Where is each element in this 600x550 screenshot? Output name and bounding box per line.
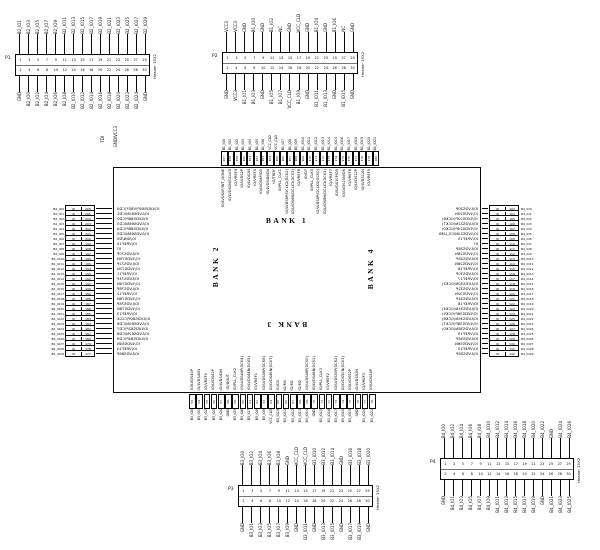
pin-number: 6 xyxy=(241,66,250,70)
net-label: B2_IO21 xyxy=(108,17,112,34)
wire xyxy=(73,76,74,92)
net-label: B2_IO16 xyxy=(50,287,64,291)
net-label: B4_IO0 xyxy=(520,207,546,211)
pin-number-box: 172 xyxy=(320,151,327,166)
pin-number: 7 xyxy=(43,58,52,62)
pin-number: 180 xyxy=(375,156,378,161)
pin-number: 15 xyxy=(503,462,512,466)
wire xyxy=(444,480,445,496)
pin-number-row: 1357911131517192123252729 xyxy=(16,55,149,66)
wire xyxy=(82,76,83,92)
wire xyxy=(251,465,252,485)
header-pin-labels: GNDB2_IO0B2_IO2B2_IO4B2_IO6B2_IO8B2_IO10… xyxy=(15,92,150,116)
wire xyxy=(96,353,112,354)
pin-number-row: 1357911131517192123252729 xyxy=(441,459,573,470)
pin-number-box: 170 xyxy=(307,151,314,166)
pin-label-cell: B4_IO14 xyxy=(503,414,512,438)
pin-number: 14 xyxy=(69,68,78,72)
pin-function-label: IO/LVDS48P(GCK0) xyxy=(306,356,310,390)
pin-label-cell: GND xyxy=(440,496,449,520)
pin-function: IO/PLL_CLK3 xyxy=(318,338,325,390)
net-label: GND xyxy=(261,90,265,99)
wire xyxy=(323,507,324,523)
pin-number: 1 xyxy=(16,58,25,62)
pin-number: 12 xyxy=(485,472,494,476)
pin-function-label: IO/LVDS44P(GCK4) xyxy=(241,356,245,390)
net-label: NC xyxy=(279,26,283,32)
pin-top: B1_IO8167 xyxy=(287,116,294,166)
net-label: B1_IO16 xyxy=(341,137,344,150)
header-pin-labels: VCC3VCC3GNDB1_IO0GNDB1_IO2NCGNDVCC_CLDGN… xyxy=(222,8,358,32)
pin-number: 21 xyxy=(529,462,538,466)
net-label: B2_IO27 xyxy=(50,342,64,346)
pin-top: B1_IO14173 xyxy=(327,116,334,166)
net-label: B4_IO24 xyxy=(520,327,546,331)
pin-number: 29 xyxy=(348,56,357,60)
pin-top: B1_IO10169 xyxy=(300,116,307,166)
pin-function-label: IO/PLL_CLK1 xyxy=(279,169,283,191)
pin-label-cell: B4_IO23 xyxy=(556,496,565,520)
wire xyxy=(482,313,488,314)
bank3-pin-functions: IO/LVDS40PIO/LVDS40NIO/VREF0IO/LVDS42PIO… xyxy=(189,338,376,390)
wire xyxy=(482,268,488,269)
pin-function-label: IO/LVDS12P xyxy=(355,169,359,190)
wire xyxy=(127,76,128,92)
pin-function-label: IO/VREF7 xyxy=(330,169,334,186)
pin-number: 68 xyxy=(299,400,302,404)
pin-number: 157 xyxy=(223,156,226,161)
wire xyxy=(482,278,488,279)
pin-bottom: 68B3_IO13 xyxy=(297,394,304,438)
net-label: B3_IO11 xyxy=(304,523,308,540)
wire xyxy=(82,34,83,54)
pin-number: 72 xyxy=(328,400,331,404)
wire xyxy=(96,248,112,249)
net-label: B1_IO12 xyxy=(315,137,318,150)
wire xyxy=(299,74,300,90)
pin-label-cell: GND xyxy=(538,496,547,520)
wire xyxy=(542,438,543,458)
pin-number: 30 xyxy=(140,68,149,72)
pin-label-cell: B1_IO5 xyxy=(267,90,276,114)
pin-wires xyxy=(15,76,150,92)
wire xyxy=(482,228,488,229)
wire xyxy=(482,353,488,354)
net-label: B2_IO14 xyxy=(90,92,94,109)
wire xyxy=(226,32,227,52)
wire xyxy=(64,34,65,54)
header-body: 1357911131517192123252729246810121416182… xyxy=(440,458,574,480)
pin-number: 21 xyxy=(328,489,337,493)
net-label: B4_IO3 xyxy=(520,222,546,226)
pin-number: 62 xyxy=(256,400,259,404)
pin-number: 3 xyxy=(450,462,459,466)
bank1-pin-functions: IO/LVDS0P/INT_DONEIO/LVDS0N/GCLK5IO/VREF… xyxy=(221,169,373,237)
wire xyxy=(96,273,112,274)
pin-number: 23 xyxy=(321,56,330,60)
pin-number-box: 175 xyxy=(340,151,347,166)
pin-number: 60 xyxy=(242,400,245,404)
pin-number-box: 166 xyxy=(280,151,287,166)
pin-label-cell: GND xyxy=(258,90,267,114)
pin-bottom: 72B3_IO16 xyxy=(326,394,333,438)
pin-label-cell: B2_IO29 xyxy=(141,10,150,34)
net-label: B3_IO14 xyxy=(306,409,309,422)
wire xyxy=(482,338,488,339)
pin-label-cell: GND xyxy=(283,441,292,465)
net-label: B4_IO22 xyxy=(541,421,545,438)
pin-number: 173 xyxy=(328,156,331,161)
bank4-pin-functions: IO/LVDS20PIO/LVDS20NIO/LVDS22P(GCK6)IO/L… xyxy=(382,206,478,356)
pin-number: 168 xyxy=(295,156,298,161)
pin-number-box: 70 xyxy=(311,394,318,409)
pin-top: B1_IO16175 xyxy=(340,116,347,166)
net-label: B4_IO0 xyxy=(442,424,446,438)
pin-number: 29 xyxy=(363,489,372,493)
pin-label-cell: B2_IO18 xyxy=(105,92,114,116)
pin-function-label: IO/VREF5 xyxy=(254,169,258,186)
net-label: B1_IO19 xyxy=(361,137,364,150)
net-label: GND xyxy=(340,523,344,532)
wire xyxy=(136,34,137,54)
net-label: B4_IO8 xyxy=(520,247,546,251)
net-label: B3_IO0 xyxy=(191,409,194,420)
pin-top: B1_IO13172 xyxy=(320,116,327,166)
pin-number-cell: 132 xyxy=(506,352,518,356)
pin-number: 75 xyxy=(349,400,352,404)
pin-number: 15 xyxy=(78,58,87,62)
wire xyxy=(482,303,488,304)
wire xyxy=(96,253,112,254)
pin-number-box: 179 xyxy=(366,151,373,166)
schematic-page: P1 Header 15X2 B2_IO1B2_IO3B2_IO5B2_IO7B… xyxy=(0,0,600,550)
wire xyxy=(482,333,488,334)
pin-function-label: IO/LVDS42P xyxy=(212,369,216,390)
pin-number: 9 xyxy=(274,489,283,493)
pin-function-label: IO/LVDS10N/D6 xyxy=(343,169,347,197)
pin-number: 4 xyxy=(248,499,257,503)
pin-label-cell: B1_IO11 xyxy=(313,90,322,114)
net-label: B2_IO23 xyxy=(117,17,121,34)
pin-number: 12 xyxy=(60,68,69,72)
net-label: B4_IO22 xyxy=(520,317,546,321)
pin-number-box: 169 xyxy=(300,151,307,166)
pin-number: 59 xyxy=(234,400,237,404)
pin-label-cell: GND xyxy=(222,90,231,114)
wire xyxy=(145,76,146,92)
pin-number: 21 xyxy=(312,56,321,60)
pin-bottom: 71B3_IO15 xyxy=(318,394,325,438)
wire xyxy=(96,328,112,329)
pin-number-cell: 177 xyxy=(82,352,94,356)
connector-p4: P4 Header 15X2 B4_IO0B4_IO2B4_IO4B4_IO6B… xyxy=(440,414,574,520)
pin-function: IO/VREF1 xyxy=(254,338,261,390)
net-label: B3_IO10 xyxy=(313,448,317,465)
pin-number: 20 xyxy=(520,472,529,476)
wire xyxy=(462,438,463,458)
net-label: B3_IO8 xyxy=(277,451,281,465)
net-label: B3_IO5 xyxy=(268,523,272,537)
net-label: B2_IO0 xyxy=(27,92,31,106)
pin-bottom: 63B3_IO9 xyxy=(261,394,268,438)
pin-number: 19 xyxy=(303,56,312,60)
pin-number-box: 178 xyxy=(359,151,366,166)
net-label: B4_IO17 xyxy=(523,496,527,513)
pin-number: 16 xyxy=(301,499,310,503)
net-label: VCC_CLD xyxy=(288,90,292,108)
wire xyxy=(287,507,288,523)
pin-number: 3 xyxy=(248,489,257,493)
wire xyxy=(296,465,297,485)
pin-function-label: IO/VREF1 xyxy=(255,373,259,390)
pin-number-box: 176 xyxy=(346,151,353,166)
pin-label-cell: B4_IO19 xyxy=(529,496,538,520)
net-label: B1_IO11 xyxy=(308,137,311,150)
pin-label-cell: B3_IO0 xyxy=(238,441,247,465)
pin-label-cell: B2_IO6 xyxy=(51,92,60,116)
wire xyxy=(96,208,112,209)
net-label: B4_IO12 xyxy=(496,421,500,438)
net-label: B4_IO26 xyxy=(520,337,546,341)
net-label: B2_IO27 xyxy=(135,17,139,34)
pin-function-label: IO/LVDS42N xyxy=(220,369,224,390)
net-label: B2_IO5 xyxy=(36,20,40,34)
wire xyxy=(506,438,507,458)
net-label: B2_IO14 xyxy=(50,277,64,281)
pin-function: IO/D0 xyxy=(275,338,282,390)
wire xyxy=(368,507,369,523)
pin-bottom: 59B3_IO5 xyxy=(232,394,239,438)
pin-bottom: 56B3_IO3 xyxy=(211,394,218,438)
net-label: B2_IO7 xyxy=(45,20,49,34)
pin-function-label: IO/VREF0 xyxy=(205,373,209,390)
pin-number-box: 54 xyxy=(196,394,203,409)
pin-number: 25 xyxy=(547,462,556,466)
pin-label-cell: B4_IO7 xyxy=(476,496,485,520)
pin-label-cell: B2_IO0 xyxy=(24,92,33,116)
pin-number: 10 xyxy=(51,68,60,72)
pin-bottom: 57B3_IO4 xyxy=(218,394,225,438)
net-label: B2_IO22 xyxy=(50,317,64,321)
pin-label-cell: B4_IO15 xyxy=(512,496,521,520)
net-label: B1_IO0 xyxy=(252,18,256,32)
net-label: GND xyxy=(550,429,554,438)
refdes-label: P1 xyxy=(5,56,11,61)
net-label: B3_IO8 xyxy=(256,409,259,420)
wire xyxy=(96,258,112,259)
net-label: B2_IO1 xyxy=(50,212,64,216)
pin-label-cell: GND xyxy=(547,414,556,438)
net-label: B1_IO13 xyxy=(322,137,325,150)
net-label: B2_IO25 xyxy=(50,332,64,336)
pin-function: IO/VREF3 xyxy=(362,338,369,390)
pin-wires xyxy=(222,32,358,52)
net-label: B1_IO0 xyxy=(223,139,226,150)
pin-function: IO/LVDS42N xyxy=(218,338,225,390)
pin-bottom: 77B3_IO20 xyxy=(362,394,369,438)
pin-function-label: IO/TRDY xyxy=(273,169,277,184)
pin-label-cell: B3_IO3 xyxy=(256,523,265,547)
pin-function-label: IO/PLL_CLK2 xyxy=(234,368,238,390)
net-label: B3_IO18 xyxy=(342,409,345,422)
pin-number: 165 xyxy=(276,156,279,161)
net-label: B4_IO9 xyxy=(520,252,546,256)
pin-label-cell: B1_IO13 xyxy=(322,90,331,114)
pin-top: B1_IO18177 xyxy=(353,116,360,166)
net-label: B3_IO16 xyxy=(328,409,331,422)
wire xyxy=(96,243,112,244)
wire xyxy=(280,74,281,90)
pin-function-label: IO/PLL_CLK0 xyxy=(311,169,315,191)
net-label: B4_IO19 xyxy=(520,302,546,306)
pin-number-row: 24681012141618202224262830 xyxy=(223,64,357,74)
pin-number: 162 xyxy=(256,156,259,161)
pin-label-cell: B2_IO23 xyxy=(114,10,123,34)
pin-top: B1_IO20179 xyxy=(366,116,373,166)
net-label: B1_IO6 xyxy=(333,18,337,32)
pin-label-cell: B2_IO3 xyxy=(24,10,33,34)
bank2-pin-functions: IO/LVDS64P/VREF/CD0IO/LVDS64N/CD1IO/LVDS… xyxy=(117,206,213,356)
pin-left: B2_IO29IO177 xyxy=(50,351,112,356)
net-label: B2_IO4 xyxy=(50,227,64,231)
pin-label-cell: B4_IO16 xyxy=(512,414,521,438)
pin-function-label: IO/LVDS40P xyxy=(191,369,195,390)
pin-number: 28 xyxy=(339,66,348,70)
pin-number: 73 xyxy=(335,400,338,404)
pin-number: 14 xyxy=(292,499,301,503)
pin-number: 17 xyxy=(310,489,319,493)
pin-function: IO/LVDS46P(GCK6) xyxy=(261,338,268,390)
wire xyxy=(353,32,354,52)
pin-number: 30 xyxy=(363,499,372,503)
wire xyxy=(96,343,112,344)
pin-top: B1_IO9168 xyxy=(294,116,301,166)
net-label: B1_IO8 xyxy=(289,139,292,150)
net-label: B4_IO16 xyxy=(520,287,546,291)
pin-label-cell: VCC_CLD xyxy=(285,90,294,114)
pin-function: IO/VREF0 xyxy=(203,338,210,390)
pin-label-cell: B4_IO8 xyxy=(476,414,485,438)
pin-label-cell: GND xyxy=(322,8,331,32)
wire xyxy=(515,480,516,496)
net-label: B2_IO19 xyxy=(50,302,64,306)
wire xyxy=(100,76,101,92)
pin-number: 29 xyxy=(140,58,149,62)
pin-function: IO/LVDS40P xyxy=(189,338,196,390)
wire xyxy=(235,32,236,52)
pin-function-label: IO/VREF6 xyxy=(298,169,302,186)
net-label: B3_IO6 xyxy=(241,409,244,420)
net-label: B2_IO1 xyxy=(18,20,22,34)
pin-number: 22 xyxy=(105,68,114,72)
net-label: B4_IO4 xyxy=(520,227,546,231)
part-label: Header 15X2 xyxy=(361,52,365,77)
wire xyxy=(482,283,488,284)
net-label: VCC_CLD xyxy=(269,135,272,150)
wire xyxy=(482,298,488,299)
net-label: B2_IO15 xyxy=(81,17,85,34)
pin-function-label: IO/LVDS0N/GCLK5 xyxy=(229,169,233,201)
pin-function: IO/LVDS40N xyxy=(196,338,203,390)
pin-label-cell: GND xyxy=(331,90,340,114)
pin-number: 19 xyxy=(96,58,105,62)
net-label: B1_IO5 xyxy=(270,90,274,104)
wire xyxy=(96,348,112,349)
net-label: GND xyxy=(313,523,317,532)
bank4-external-pins: IO103B4_IO0IO104B4_IO1IO105B4_IO2IO106B4… xyxy=(482,206,546,356)
pin-label-cell: GND xyxy=(337,441,346,465)
pin-number-box: 53 xyxy=(189,394,196,409)
pin-function-label: IO/LVDS52N xyxy=(356,369,360,390)
pin-bottom: 66B3_IO11 xyxy=(282,394,289,438)
wire xyxy=(305,465,306,485)
pin-number: 13 xyxy=(69,58,78,62)
pin-label-cell: B1_IO6 xyxy=(331,8,340,32)
wire xyxy=(305,507,306,523)
pin-number: 174 xyxy=(335,156,338,161)
net-label: B4_IO15 xyxy=(520,282,546,286)
wire xyxy=(353,74,354,90)
pin-number-box: 158 xyxy=(228,151,235,166)
net-label: VCC_CLD xyxy=(270,409,273,424)
pin-function-label: IO/LVDS2N xyxy=(248,169,252,188)
wire xyxy=(242,507,243,523)
header-pin-labels: B4_IO0B4_IO2B4_IO4B4_IO6B4_IO8B4_IO10B4_… xyxy=(440,414,574,438)
pin-number: 23 xyxy=(538,462,547,466)
wire xyxy=(335,32,336,52)
net-label: VCC3 xyxy=(234,90,238,101)
wire xyxy=(482,318,488,319)
pin-number: 17 xyxy=(295,56,304,60)
wire xyxy=(251,507,252,523)
pin-number: 166 xyxy=(282,156,285,161)
wire xyxy=(96,228,112,229)
wire xyxy=(96,308,112,309)
pin-top: B1_IO0157 xyxy=(221,116,228,166)
pin-number-box: 157 xyxy=(221,151,228,166)
wire xyxy=(37,34,38,54)
pin-number-box: 168 xyxy=(294,151,301,166)
pin-number: 4 xyxy=(25,68,34,72)
pin-number: 15 xyxy=(286,56,295,60)
wire xyxy=(551,480,552,496)
wire xyxy=(471,438,472,458)
wire xyxy=(462,480,463,496)
pin-number: 54 xyxy=(198,400,201,404)
wire xyxy=(19,34,20,54)
pin-number-box: 69 xyxy=(304,394,311,409)
net-label: B1_IO2 xyxy=(236,139,239,150)
pin-label-cell: B4_IO4 xyxy=(458,414,467,438)
pin-label-cell: B2_IO1 xyxy=(15,10,24,34)
pin-bottom: 58GND xyxy=(225,394,232,438)
wire xyxy=(96,323,112,324)
net-label: B2_IO10 xyxy=(50,257,64,261)
pin-number: 29 xyxy=(564,462,573,466)
wire xyxy=(235,74,236,90)
pin-top: B1_IO17176 xyxy=(346,116,353,166)
wire xyxy=(19,76,20,92)
net-label: B2_IO29 xyxy=(50,352,64,356)
wire xyxy=(482,308,488,309)
pin-box: IO132 xyxy=(489,350,519,356)
pin-number: 158 xyxy=(229,156,232,161)
pin-number-box: 75 xyxy=(347,394,354,409)
pin-top: B1_IO1158 xyxy=(228,116,235,166)
net-label: B3_IO9 xyxy=(286,523,290,537)
net-label: B2_IO7 xyxy=(50,242,64,246)
pin-number-box: 56 xyxy=(211,394,218,409)
